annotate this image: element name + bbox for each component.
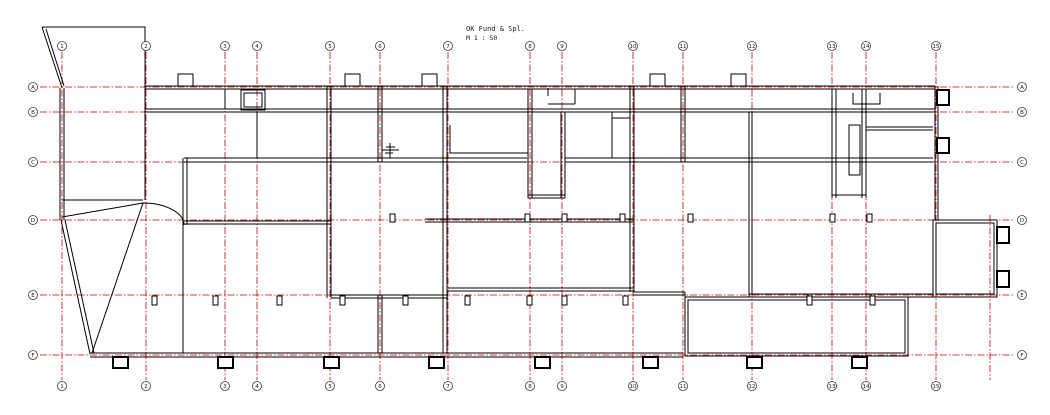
grid-bubble-bottom-3: 3 bbox=[221, 382, 230, 391]
grid-bubble-label: F bbox=[31, 353, 34, 359]
column-pier bbox=[525, 214, 530, 222]
grid-bubble-label: C bbox=[31, 160, 35, 166]
grid-bubble-label: 6 bbox=[378, 384, 382, 390]
grid-bubble-left-D: D bbox=[29, 216, 38, 225]
grid-bubble-bottom-11: 11 bbox=[679, 382, 688, 391]
column-pier bbox=[688, 214, 693, 222]
column-pier bbox=[152, 296, 157, 305]
grid-bubble-top-10: 10 bbox=[629, 42, 638, 51]
grid-bubble-label: 5 bbox=[328, 384, 332, 390]
grid-bubble-label: 3 bbox=[223, 44, 227, 50]
column-pier bbox=[870, 296, 875, 305]
drawing-scale: M 1 : 50 bbox=[466, 34, 497, 42]
grid-bubble-label: 14 bbox=[863, 384, 870, 390]
roof-tab bbox=[650, 74, 665, 86]
grid-bubble-label: 15 bbox=[933, 44, 940, 50]
grid-bubble-label: 8 bbox=[528, 44, 532, 50]
grid-bubble-bottom-15: 15 bbox=[932, 382, 941, 391]
grid-bubble-bottom-13: 13 bbox=[828, 382, 837, 391]
grid-bubble-label: 7 bbox=[446, 44, 450, 50]
grid-bubble-top-8: 8 bbox=[526, 42, 535, 51]
column-pier bbox=[562, 214, 567, 222]
grid-bubble-label: 13 bbox=[829, 384, 836, 390]
side-tab bbox=[937, 90, 949, 105]
grid-bubble-label: 5 bbox=[328, 44, 332, 50]
foundation-tab bbox=[429, 357, 444, 368]
grid-bubble-bottom-4: 4 bbox=[253, 382, 262, 391]
drawing-title: OK Fund & Spl. bbox=[466, 25, 525, 33]
column-pier bbox=[867, 214, 872, 222]
grid-bubble-label: 2 bbox=[144, 384, 148, 390]
column-pier bbox=[390, 214, 395, 222]
grid-bubble-label: 2 bbox=[144, 44, 148, 50]
grid-bubble-top-4: 4 bbox=[253, 42, 262, 51]
grid-bubble-top-5: 5 bbox=[326, 42, 335, 51]
grid-bubble-label: 15 bbox=[933, 384, 940, 390]
grid-bubble-top-7: 7 bbox=[444, 42, 453, 51]
foundation-tab bbox=[218, 357, 233, 368]
grid-bubble-label: 3 bbox=[223, 384, 227, 390]
foundation-tab bbox=[852, 357, 867, 368]
grid-bubble-label: 7 bbox=[446, 384, 450, 390]
grid-bubble-label: 14 bbox=[863, 44, 870, 50]
grid-bubble-top-1: 1 bbox=[58, 42, 67, 51]
grid-bubble-right-F: F bbox=[1018, 351, 1027, 360]
grid-bubble-bottom-10: 10 bbox=[629, 382, 638, 391]
grid-bubble-right-D: D bbox=[1018, 216, 1027, 225]
roof-tab bbox=[731, 74, 746, 86]
grid-bubble-label: 9 bbox=[560, 44, 564, 50]
grid-bubble-top-14: 14 bbox=[862, 42, 871, 51]
grid-bubble-label: 11 bbox=[680, 384, 687, 390]
column-pier bbox=[623, 296, 628, 305]
foundation-tab bbox=[535, 357, 550, 368]
column-pier bbox=[213, 296, 218, 305]
grid-bubble-left-F: F bbox=[29, 351, 38, 360]
grid-bubble-left-B: B bbox=[29, 108, 38, 117]
grid-bubble-top-13: 13 bbox=[828, 42, 837, 51]
grid-bubble-left-A: A bbox=[29, 83, 38, 92]
grid-bubble-label: C bbox=[1020, 160, 1024, 166]
grid-bubble-right-E: E bbox=[1018, 291, 1027, 300]
grid-bubble-top-12: 12 bbox=[748, 42, 757, 51]
grid-bubble-label: B bbox=[1020, 110, 1024, 116]
grid-bubble-left-E: E bbox=[29, 291, 38, 300]
grid-bubble-right-C: C bbox=[1018, 158, 1027, 167]
grid-bubble-right-A: A bbox=[1018, 83, 1027, 92]
floor-plan-canvas: 1122334455667788991010111112121313141415… bbox=[0, 0, 1050, 415]
grid-bubble-bottom-14: 14 bbox=[862, 382, 871, 391]
grid-bubble-label: 8 bbox=[528, 384, 532, 390]
drawing-title-block: OK Fund & Spl. M 1 : 50 bbox=[466, 25, 525, 42]
roof-tab bbox=[345, 74, 360, 86]
grid-bubble-label: E bbox=[1020, 293, 1024, 299]
grid-bubble-bottom-8: 8 bbox=[526, 382, 535, 391]
grid-bubble-top-11: 11 bbox=[679, 42, 688, 51]
grid-bubble-label: D bbox=[31, 218, 35, 224]
grid-bubble-label: B bbox=[31, 110, 35, 116]
grid-bubble-top-3: 3 bbox=[221, 42, 230, 51]
column-pier bbox=[277, 296, 282, 305]
column-pier bbox=[403, 296, 408, 305]
grid-bubble-bottom-5: 5 bbox=[326, 382, 335, 391]
grid-bubble-label: 4 bbox=[255, 44, 259, 50]
grid-bubble-bottom-2: 2 bbox=[142, 382, 151, 391]
column-pier bbox=[830, 214, 835, 222]
column-pier bbox=[340, 296, 345, 305]
grid-bubble-bottom-9: 9 bbox=[558, 382, 567, 391]
grid-bubble-label: 13 bbox=[829, 44, 836, 50]
grid-bubble-label: 1 bbox=[60, 384, 64, 390]
grid-bubble-label: 6 bbox=[378, 44, 382, 50]
foundation-tab bbox=[113, 357, 128, 368]
grid-bubble-bottom-12: 12 bbox=[748, 382, 757, 391]
column-pier bbox=[562, 296, 567, 305]
foundation-tab bbox=[324, 357, 339, 368]
grid-bubble-label: A bbox=[31, 85, 35, 91]
column-pier bbox=[465, 296, 470, 305]
grid-bubble-label: 12 bbox=[749, 384, 756, 390]
roof-tab bbox=[422, 74, 437, 86]
grid-bubble-bottom-6: 6 bbox=[376, 382, 385, 391]
foundation-tab bbox=[747, 357, 762, 368]
grid-bubble-label: F bbox=[1020, 353, 1023, 359]
grid-bubble-top-6: 6 bbox=[376, 42, 385, 51]
grid-bubble-label: 11 bbox=[680, 44, 687, 50]
column-pier bbox=[620, 214, 625, 222]
side-tab bbox=[997, 271, 1009, 287]
grid-bubble-label: 10 bbox=[630, 44, 637, 50]
grid-bubble-right-B: B bbox=[1018, 108, 1027, 117]
grid-bubble-label: A bbox=[1020, 85, 1024, 91]
grid-bubble-top-2: 2 bbox=[142, 42, 151, 51]
grid-bubble-label: 4 bbox=[255, 384, 259, 390]
grid-bubble-label: 10 bbox=[630, 384, 637, 390]
column-pier bbox=[527, 296, 532, 305]
grid-bubble-bottom-1: 1 bbox=[58, 382, 67, 391]
grid-bubble-left-C: C bbox=[29, 158, 38, 167]
side-tab bbox=[937, 138, 949, 153]
grid-bubble-label: 1 bbox=[60, 44, 64, 50]
floor-plan-drawing: 1122334455667788991010111112121313141415… bbox=[0, 0, 1050, 415]
grid-bubble-label: 9 bbox=[560, 384, 564, 390]
grid-bubble-label: 12 bbox=[749, 44, 756, 50]
grid-bubble-top-9: 9 bbox=[558, 42, 567, 51]
side-tab bbox=[997, 227, 1009, 243]
foundation-tab bbox=[643, 357, 658, 368]
grid-bubble-bottom-7: 7 bbox=[444, 382, 453, 391]
column-pier bbox=[807, 296, 812, 305]
roof-tab bbox=[178, 74, 193, 86]
grid-bubble-label: E bbox=[31, 293, 35, 299]
grid-bubble-top-15: 15 bbox=[932, 42, 941, 51]
grid-bubble-label: D bbox=[1020, 218, 1024, 224]
